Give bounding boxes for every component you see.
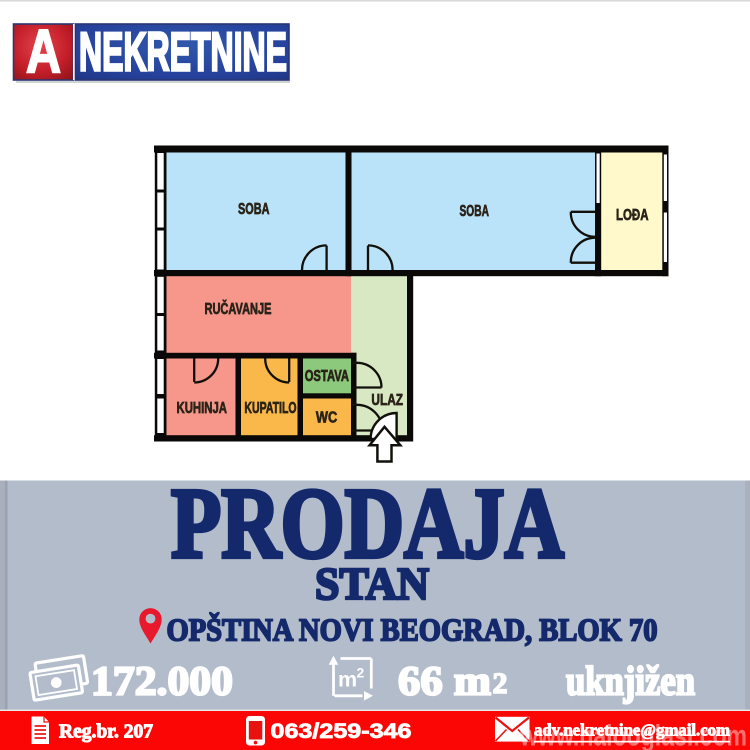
svg-text:WC: WC (316, 409, 337, 426)
svg-text:KUPATILO: KUPATILO (244, 400, 296, 417)
svg-text:STAN: STAN (315, 558, 429, 609)
svg-text:SOBA: SOBA (238, 201, 270, 218)
svg-text:A: A (26, 18, 61, 86)
svg-text:SOBA: SOBA (460, 203, 490, 220)
svg-text:172.000: 172.000 (91, 658, 233, 704)
svg-text:2: 2 (493, 667, 508, 700)
svg-text:m: m (338, 668, 357, 692)
svg-text:Reg.br. 207: Reg.br. 207 (59, 722, 153, 743)
svg-text:LOĐA: LOĐA (616, 207, 649, 224)
svg-text:uknjižen: uknjižen (566, 658, 695, 704)
svg-text:OSTAVA: OSTAVA (305, 368, 349, 385)
svg-text:66 m: 66 m (398, 658, 491, 704)
svg-text:RUČAVANJE: RUČAVANJE (205, 300, 272, 318)
svg-text:KUHINJA: KUHINJA (177, 400, 228, 417)
svg-text:ULAZ: ULAZ (371, 392, 403, 409)
svg-text:NEKRETNINE: NEKRETNINE (79, 21, 287, 83)
svg-text:OPŠTINA NOVI BEOGRAD, BLOK 70: OPŠTINA NOVI BEOGRAD, BLOK 70 (167, 613, 658, 648)
svg-text:www.halooglasi.com: www.halooglasi.com (519, 720, 747, 750)
svg-text:063/259-346: 063/259-346 (271, 720, 412, 743)
svg-text:2: 2 (357, 665, 365, 681)
